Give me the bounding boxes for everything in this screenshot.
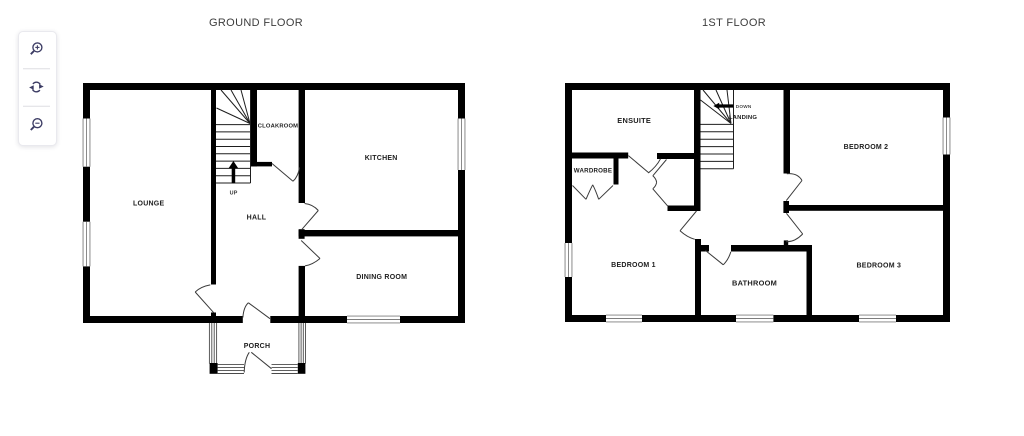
svg-text:BEDROOM 1: BEDROOM 1 bbox=[611, 262, 656, 269]
svg-text:HALL: HALL bbox=[247, 215, 267, 222]
svg-text:KITCHEN: KITCHEN bbox=[365, 155, 398, 162]
svg-text:BATHROOM: BATHROOM bbox=[732, 279, 777, 288]
svg-text:BEDROOM 2: BEDROOM 2 bbox=[844, 144, 889, 151]
svg-text:BEDROOM 3: BEDROOM 3 bbox=[856, 263, 901, 270]
svg-text:LOUNGE: LOUNGE bbox=[133, 201, 165, 208]
svg-text:LANDING: LANDING bbox=[729, 115, 757, 121]
svg-text:UP: UP bbox=[230, 190, 238, 196]
svg-text:CLOAKROOM: CLOAKROOM bbox=[258, 124, 298, 130]
svg-text:DINING ROOM: DINING ROOM bbox=[356, 274, 407, 281]
svg-text:ENSUITE: ENSUITE bbox=[617, 116, 651, 125]
svg-text:WARDROBE: WARDROBE bbox=[574, 167, 612, 174]
svg-text:PORCH: PORCH bbox=[244, 343, 271, 350]
svg-text:DOWN: DOWN bbox=[736, 104, 752, 109]
